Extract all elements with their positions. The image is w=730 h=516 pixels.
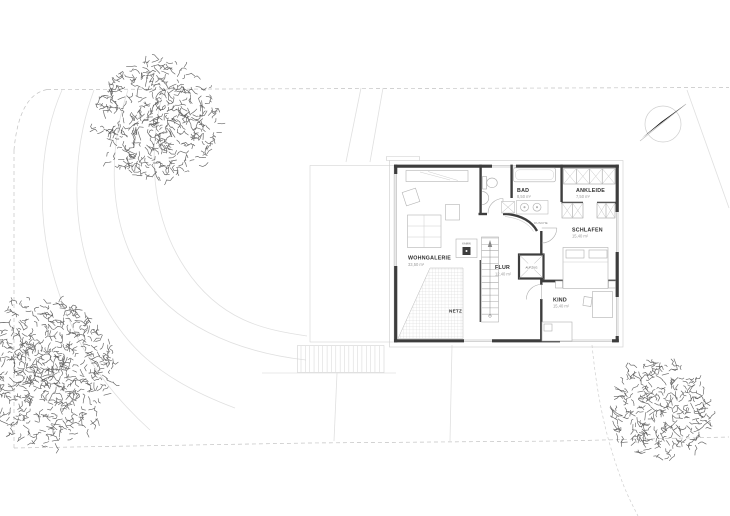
nightstand [556, 281, 563, 288]
site-boundary [14, 88, 729, 449]
svg-text:7,50 m²: 7,50 m² [576, 194, 591, 199]
svg-text:NETZ: NETZ [449, 309, 462, 314]
double-washbasin [517, 201, 549, 215]
shower-wall-inner-line [505, 217, 534, 232]
site-plan-svg: AUFZUG KAMIN [0, 0, 730, 516]
toilet [483, 177, 498, 190]
svg-text:8,50 m²: 8,50 m² [517, 194, 532, 199]
terrace [310, 166, 394, 343]
bathtub-inner [516, 170, 554, 180]
tree-bottom-left [0, 296, 119, 453]
furniture-schlafen [556, 248, 616, 289]
door-schlafen [542, 228, 557, 243]
net-area [398, 268, 463, 339]
sofa-group [408, 215, 442, 248]
north-arrow-circle [645, 106, 681, 142]
north-arrow-axis [640, 104, 686, 141]
terrain-contours [42, 88, 729, 441]
tree-bottom-right [610, 359, 715, 461]
svg-text:33,50 m²: 33,50 m² [408, 262, 425, 267]
svg-text:FLUR: FLUR [495, 265, 510, 271]
elevator-shaft: AUFZUG [519, 255, 544, 279]
wardrobe-row-top [564, 169, 616, 185]
room-label-flur: FLUR 12,40 m² [495, 265, 512, 277]
furniture-wohngalerie [402, 171, 468, 248]
pillow [566, 250, 584, 258]
fireplace-label: KAMIN [462, 243, 471, 246]
staircase [482, 237, 499, 322]
desk-chair [583, 296, 592, 306]
pillow [589, 250, 607, 258]
svg-text:15,40 m²: 15,40 m² [572, 234, 589, 239]
nightstand [609, 281, 616, 288]
room-label-netz: NETZ [449, 309, 462, 314]
room-label-kind: KIND 15,40 m² [553, 298, 570, 309]
pillow [544, 324, 552, 331]
door-bad [488, 199, 503, 214]
wardrobe-row-bottom-right [597, 203, 615, 218]
side-table [446, 205, 460, 221]
house: AUFZUG KAMIN [387, 157, 624, 348]
tree-top-left [90, 54, 225, 185]
elevator-label: AUFZUG [525, 265, 537, 269]
room-label-schlafen: SCHLAFEN 15,40 m² [572, 228, 603, 239]
armchair [402, 188, 420, 206]
fireplace: KAMIN [456, 239, 477, 258]
door-kind [526, 285, 541, 300]
north-arrow [640, 104, 686, 142]
stove-pipe-icon [466, 250, 468, 252]
svg-text:WOHNGALERIE: WOHNGALERIE [408, 256, 451, 262]
svg-text:DUSCHE: DUSCHE [534, 221, 548, 225]
corner-sink [482, 192, 489, 205]
sideboard [406, 171, 468, 182]
exterior-stairs [298, 346, 385, 373]
washer-cabinet [502, 202, 515, 214]
stair-arrow-head [488, 240, 492, 247]
room-label-ankleide: ANKLEIDE 7,50 m² [576, 188, 605, 199]
desk [593, 292, 613, 318]
wardrobe-row-bottom-left [562, 203, 583, 218]
svg-text:15,40 m²: 15,40 m² [553, 304, 570, 309]
floor-plan-canvas: AUFZUG KAMIN [0, 0, 730, 516]
room-label-bad: BAD 8,50 m² [517, 188, 532, 199]
exterior-stair-stripes [301, 346, 379, 372]
room-label-wohngalerie: WOHNGALERIE 33,50 m² [408, 256, 451, 268]
svg-text:12,40 m²: 12,40 m² [495, 272, 512, 277]
room-label-dusche: DUSCHE [534, 221, 548, 225]
